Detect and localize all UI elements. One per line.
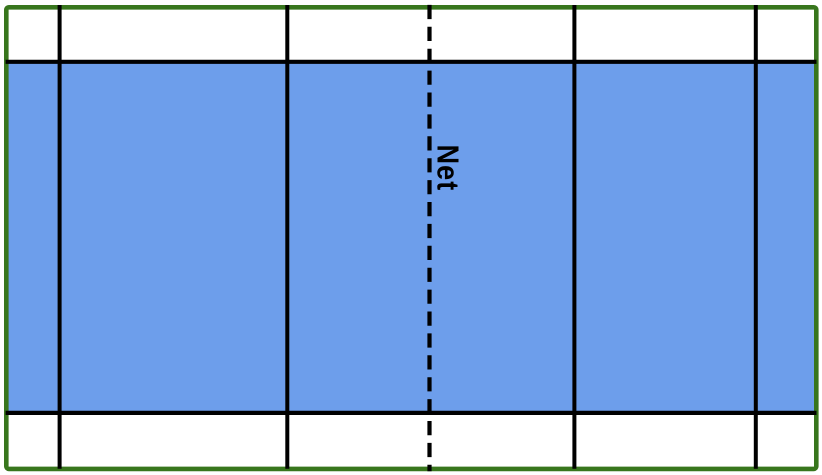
svg-text:Net: Net — [430, 145, 464, 192]
